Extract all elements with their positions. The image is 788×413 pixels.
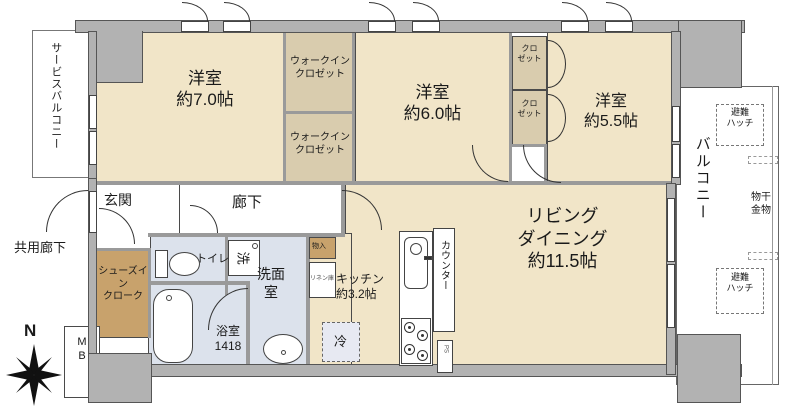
wic-area bbox=[285, 26, 355, 185]
closet2-line2: ゼット bbox=[511, 109, 548, 119]
window-bedroom2-b bbox=[412, 21, 440, 32]
kitchen-faucet bbox=[410, 243, 422, 255]
window-service-balcony-b bbox=[89, 131, 97, 165]
window-bedroom2-a bbox=[368, 21, 396, 32]
window-bedroom3-a bbox=[561, 21, 589, 32]
shoes-closet-label: シューズイ ン クローク bbox=[94, 266, 152, 304]
sliding-door-ld-b bbox=[667, 264, 675, 328]
wall-bedrooms-south bbox=[97, 181, 672, 185]
wic2-line1: ウォークイン bbox=[283, 132, 357, 145]
stove-burner-1 bbox=[404, 322, 415, 333]
wall-shoes-top bbox=[93, 248, 150, 251]
window-bedroom3-side-b bbox=[672, 144, 680, 178]
pillar-top-right bbox=[678, 20, 742, 88]
stove-burner-2 bbox=[417, 330, 428, 341]
north-label: N bbox=[24, 320, 36, 341]
hatch-top-line2: ハッチ bbox=[716, 118, 764, 129]
bathtub-drain bbox=[166, 295, 172, 301]
stove-burner-3 bbox=[404, 344, 415, 355]
washroom-label: 洗面 室 bbox=[240, 266, 302, 301]
kitchen-name: キッチン bbox=[336, 272, 400, 287]
common-corridor-label: 共用廊下 bbox=[14, 240, 66, 256]
bedroom3-name: 洋室 bbox=[555, 92, 667, 112]
washroom-sink-drain bbox=[281, 350, 286, 355]
meter-box-label: M B bbox=[64, 336, 100, 364]
laundry-hardware-line2: 金物 bbox=[742, 205, 780, 218]
washer-label: 洗 bbox=[234, 252, 250, 265]
hatch-top-line1: 避難 bbox=[716, 107, 764, 118]
window-bedroom1-b bbox=[223, 21, 251, 32]
linen-label: リネン庫 bbox=[310, 276, 334, 284]
window-arc-1 bbox=[182, 2, 208, 21]
entrance-door-opening bbox=[89, 191, 97, 233]
shoes-closet-line2: ン bbox=[94, 279, 152, 292]
closet2-label: クロ ゼット bbox=[511, 99, 548, 119]
bathroom-size: 1418 bbox=[200, 339, 256, 354]
wall-wic-left bbox=[283, 26, 286, 185]
wic1-line2: クロゼット bbox=[283, 69, 357, 82]
window-arc-2 bbox=[224, 2, 250, 21]
washroom-line1: 洗面 bbox=[240, 266, 302, 284]
window-arc-4 bbox=[413, 2, 439, 21]
laundry-hook-top bbox=[748, 156, 778, 164]
pipe-space-label: PS bbox=[441, 345, 449, 353]
bedroom3-size: 約5.5帖 bbox=[555, 112, 667, 132]
window-bedroom1-a bbox=[181, 21, 209, 32]
wic1-label: ウォークイン クロゼット bbox=[283, 56, 357, 81]
closet1-label: クロ ゼット bbox=[511, 44, 548, 64]
wall-top bbox=[75, 20, 745, 33]
bathtub bbox=[153, 289, 193, 363]
counter-label: カウンター bbox=[437, 240, 450, 290]
bedroom2-label: 洋室 約6.0帖 bbox=[375, 82, 490, 125]
bedroom3-door-arc bbox=[523, 145, 561, 183]
floor-plan: サービスバルコニー 共用廊下 洋室 約7.0帖 ウォークイン クロゼット ウォー… bbox=[0, 0, 788, 413]
wic1-line1: ウォークイン bbox=[283, 56, 357, 69]
bedroom1-label: 洋室 約7.0帖 bbox=[130, 68, 280, 111]
washroom-line2: 室 bbox=[240, 284, 302, 302]
window-arc-3 bbox=[369, 2, 395, 21]
hatch-bottom-line1: 避難 bbox=[716, 272, 764, 283]
service-balcony-label: サービスバルコニー bbox=[48, 42, 62, 150]
wall-wic-right bbox=[352, 26, 355, 185]
closet1-line2: ゼット bbox=[511, 54, 548, 64]
wall-wic-mid bbox=[285, 111, 353, 114]
storage-label: 物入 bbox=[312, 243, 326, 252]
shoes-closet-line3: クローク bbox=[94, 291, 152, 304]
wall-bath-top bbox=[148, 281, 250, 285]
pillar-bottom-right bbox=[677, 334, 741, 403]
kitchen-label: キッチン 約3.2帖 bbox=[336, 272, 400, 302]
stove-burner-4 bbox=[417, 350, 428, 361]
window-bedroom3-b bbox=[605, 21, 633, 32]
hatch-top-label: 避難 ハッチ bbox=[716, 107, 764, 130]
bedroom1-size: 約7.0帖 bbox=[130, 89, 280, 110]
window-service-balcony-a bbox=[89, 95, 97, 129]
bedroom2-size: 約6.0帖 bbox=[375, 103, 490, 124]
closet2-line1: クロ bbox=[511, 99, 548, 109]
wic2-label: ウォークイン クロゼット bbox=[283, 132, 357, 157]
living-dining-line2: ダイニング bbox=[470, 228, 655, 251]
bedroom1-name: 洋室 bbox=[130, 68, 280, 89]
compass-rose-icon bbox=[6, 344, 62, 406]
laundry-hardware-line1: 物干 bbox=[742, 192, 780, 205]
window-arc-5 bbox=[562, 2, 588, 21]
laundry-hook-bottom bbox=[748, 252, 778, 260]
balcony-label: バルコニー bbox=[692, 136, 711, 221]
entrance-door-arc-out bbox=[46, 190, 88, 232]
fridge-label: 冷 bbox=[334, 334, 347, 350]
washer-faucet bbox=[252, 243, 258, 249]
window-arc-6 bbox=[606, 2, 632, 21]
laundry-hardware-label: 物干 金物 bbox=[742, 192, 780, 217]
hatch-bottom-label: 避難 ハッチ bbox=[716, 272, 764, 295]
hallway-label: 廊下 bbox=[232, 194, 262, 213]
kitchen-faucet-handle bbox=[424, 256, 432, 260]
closet1-line1: クロ bbox=[511, 44, 548, 54]
kitchen-size: 約3.2帖 bbox=[336, 287, 400, 302]
bedroom2-name: 洋室 bbox=[375, 82, 490, 103]
bathroom-name: 浴室 bbox=[200, 324, 256, 339]
window-bedroom3-side-a bbox=[672, 106, 680, 142]
balcony-railing-line bbox=[772, 86, 773, 385]
bathroom-label: 浴室 1418 bbox=[200, 324, 256, 354]
shoes-closet-line1: シューズイ bbox=[94, 266, 152, 279]
living-dining-line1: リビング bbox=[470, 205, 655, 228]
living-dining-label: リビング ダイニング 約11.5帖 bbox=[470, 205, 655, 273]
living-dining-size: 約11.5帖 bbox=[470, 250, 655, 273]
wic2-line2: クロゼット bbox=[283, 145, 357, 158]
entrance-label: 玄関 bbox=[104, 192, 132, 210]
bedroom3-label: 洋室 約5.5帖 bbox=[555, 92, 667, 132]
washroom-sink bbox=[263, 334, 303, 364]
toilet-label: トイレ bbox=[196, 253, 229, 267]
meter-box-line1: M bbox=[64, 336, 100, 350]
sliding-door-ld-a bbox=[667, 198, 675, 262]
toilet-tank bbox=[155, 250, 168, 278]
meter-box-line2: B bbox=[64, 350, 100, 364]
hatch-bottom-line2: ハッチ bbox=[716, 283, 764, 294]
